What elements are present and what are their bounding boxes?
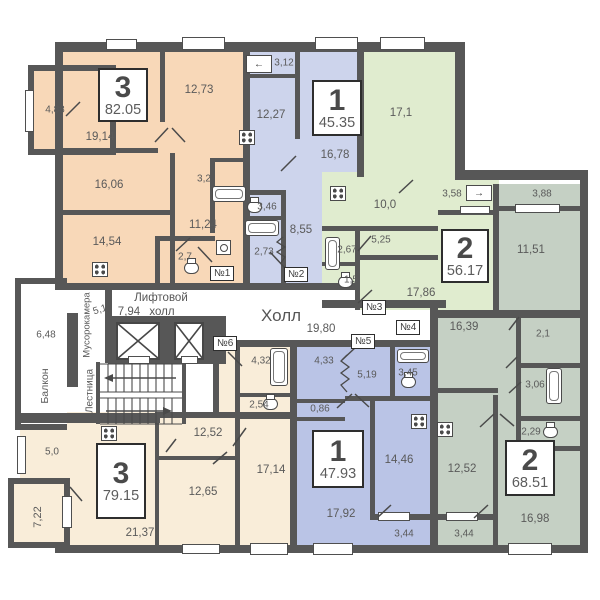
apartment-badge: 1 47.93 [312, 430, 364, 488]
wall [210, 158, 248, 162]
window [315, 37, 358, 50]
stove-icon [437, 422, 453, 437]
room-area-label: 2,67 [337, 245, 356, 256]
room-area-label: 3,44 [394, 529, 413, 540]
wall [155, 236, 215, 241]
window [250, 543, 288, 555]
wall [370, 398, 375, 518]
wall [238, 415, 290, 419]
apartment-badge: 2 56.17 [441, 229, 489, 283]
apartment-total-area: 47.93 [320, 467, 356, 482]
room-area-label: 11,51 [517, 244, 545, 256]
room-area-label: 4,88 [45, 105, 64, 116]
appliance-arrow-icon: → [474, 188, 484, 199]
wall [182, 362, 186, 424]
wall [238, 393, 290, 397]
window [313, 543, 353, 555]
wall [297, 399, 345, 403]
wall [360, 255, 438, 260]
room-area-label: 0,86 [310, 404, 329, 415]
wall [159, 456, 238, 460]
window [378, 512, 410, 521]
bathtub [270, 348, 288, 386]
room-area-label: 3,45 [398, 368, 417, 379]
appliance-arrow-icon: ← [254, 59, 264, 70]
elevator-door [181, 356, 198, 364]
window [515, 204, 560, 213]
apartment-number-tag: №1 [210, 266, 234, 281]
balcony-label: Балкон [39, 368, 51, 403]
apartment-rooms-count: 1 [330, 436, 347, 468]
wall [390, 347, 395, 396]
hall-area-label: 19,80 [307, 323, 336, 335]
apartment-badge: 2 68.51 [505, 440, 555, 496]
elevator-cab-small [174, 322, 204, 360]
room-area-label: 1,5 [344, 275, 358, 286]
apartment-total-area: 45.35 [319, 116, 355, 131]
appliance-icon: ← [246, 55, 272, 73]
wall [516, 318, 521, 448]
room-area-label: 11,24 [189, 219, 217, 231]
apartment-rooms-count: 3 [113, 458, 130, 490]
window [380, 37, 425, 50]
washer-icon [216, 240, 231, 255]
apartment-number-tag: №3 [362, 300, 386, 315]
wall [493, 395, 498, 545]
room-area-label: 19,14 [86, 131, 115, 143]
room-area-label: 16,78 [321, 149, 350, 161]
hall-label: Холл [261, 306, 301, 326]
wall [322, 226, 438, 231]
room-area-label: 12,52 [194, 427, 223, 439]
wall [155, 412, 159, 545]
room-area-label: 5,19 [357, 370, 376, 381]
room-area-label: 16,06 [95, 179, 124, 191]
room-area-label: 3,58 [442, 189, 461, 200]
apartment-number-tag: №4 [396, 320, 420, 335]
window [182, 544, 220, 554]
room-area-label: 3,12 [274, 58, 293, 69]
room-area-label: 8,55 [290, 224, 312, 236]
room-area-label: 4,33 [314, 356, 333, 367]
wall [516, 416, 580, 421]
room-area-label: 3,88 [532, 189, 551, 200]
room-area-label: 4,32 [251, 356, 270, 367]
room-area-label: 2,54 [249, 400, 268, 411]
room-area-label: 10,0 [374, 199, 396, 211]
wall [455, 170, 588, 180]
apartment-total-area: 56.17 [447, 264, 483, 279]
wall [235, 345, 240, 545]
room-area-label: 2,7 [178, 252, 192, 263]
room-area-label: 17,92 [327, 508, 356, 520]
apartment-badge: 1 45.35 [312, 80, 362, 136]
lift-hall-label2: холл [149, 306, 174, 318]
apartment-total-area: 82.05 [105, 103, 141, 118]
stairs-label: Лестница [85, 369, 96, 413]
wall [96, 362, 100, 424]
room-area-label: 5,25 [371, 235, 390, 246]
room-area-label: 3,46 [257, 202, 276, 213]
stove-icon [411, 414, 427, 429]
room-area-label: 12,65 [189, 486, 218, 498]
toilet-icon [543, 426, 558, 438]
toilet-icon [184, 262, 199, 274]
stove-icon [92, 262, 108, 277]
balcony-area-label: 6,48 [36, 330, 55, 341]
room-area-label: 5,0 [45, 447, 59, 458]
wall [580, 176, 588, 553]
room-area-label: 3,2 [197, 174, 211, 185]
wall [493, 184, 499, 310]
room-area-label: 17,14 [257, 464, 286, 476]
apartment-rooms-count: 3 [115, 72, 132, 104]
common-balcony-left [15, 278, 67, 430]
elevator-door [128, 356, 150, 364]
lift-hall-label: Лифтовой [134, 292, 188, 304]
wall [290, 345, 297, 545]
apartment-rooms-count: 1 [329, 85, 346, 117]
elevator-cab-large [116, 322, 160, 360]
wall [246, 74, 300, 78]
wall [55, 283, 360, 290]
window [62, 496, 72, 528]
garbage-chute-wall [67, 313, 78, 387]
apartment-number-tag: №2 [284, 267, 308, 282]
wall [15, 413, 160, 423]
room-area-label: 17,86 [407, 287, 436, 299]
room-area-label: 2,1 [536, 329, 550, 340]
garbage-room-label: Мусорокамера [82, 292, 93, 357]
window [460, 206, 490, 214]
window [17, 436, 26, 474]
wall [58, 148, 158, 153]
room-area-label: 16,39 [450, 321, 479, 333]
apartment-total-area: 68.51 [512, 476, 548, 491]
stove-icon [330, 186, 346, 201]
wall [243, 42, 250, 290]
room-area-label: 2,73 [254, 247, 273, 258]
apartment-rooms-count: 2 [522, 445, 539, 477]
room-area-label: 3,44 [454, 529, 473, 540]
apartment-2-bottom-fill-b [438, 310, 580, 545]
room-area-label: 3,06 [525, 380, 544, 391]
wall [170, 153, 175, 285]
wall [297, 417, 345, 421]
room-area-label: 16,98 [521, 513, 550, 525]
wall [438, 388, 498, 393]
stove-icon [239, 130, 255, 145]
apartment-number-tag: №6 [213, 336, 237, 351]
wall [55, 42, 63, 290]
room-area-label: 14,46 [385, 454, 414, 466]
room-area-label: 12,52 [448, 463, 477, 475]
floor-plan: ← → [0, 0, 600, 600]
room-area-label: 7,22 [32, 506, 44, 527]
window [508, 543, 552, 555]
window [25, 90, 34, 132]
wall [155, 236, 160, 285]
room-area-label: 21,37 [126, 527, 155, 539]
bathtub [212, 186, 246, 202]
apartment-number-tag: №5 [351, 334, 375, 349]
wall [295, 47, 300, 139]
apartment-total-area: 79.15 [103, 489, 139, 504]
wall [438, 310, 580, 318]
room-area-label: 2,29 [521, 427, 540, 438]
apartment-rooms-count: 2 [457, 233, 474, 265]
wall [160, 47, 165, 122]
bathtub [546, 368, 562, 404]
bathtub [397, 349, 429, 363]
wall [355, 231, 360, 310]
wall [345, 396, 433, 401]
window [106, 39, 137, 50]
appliance-icon: → [466, 185, 492, 201]
lift-hall-area-label: 7,94 [118, 306, 140, 318]
wall [58, 210, 172, 215]
apartment-badge: 3 82.05 [98, 68, 148, 122]
apartment-3-bottom-fill [58, 412, 290, 545]
room-area-label: 14,54 [93, 236, 122, 248]
wall [455, 42, 465, 180]
room-area-label: 12,27 [257, 109, 286, 121]
wall [213, 340, 438, 347]
window [182, 37, 225, 50]
wall [243, 190, 285, 195]
room-area-label: 17,1 [390, 107, 412, 119]
stove-icon [101, 426, 117, 441]
apartment-badge: 3 79.15 [96, 443, 146, 519]
room-area-label: 12,73 [185, 84, 214, 96]
bathtub [245, 220, 279, 236]
window [446, 512, 478, 521]
